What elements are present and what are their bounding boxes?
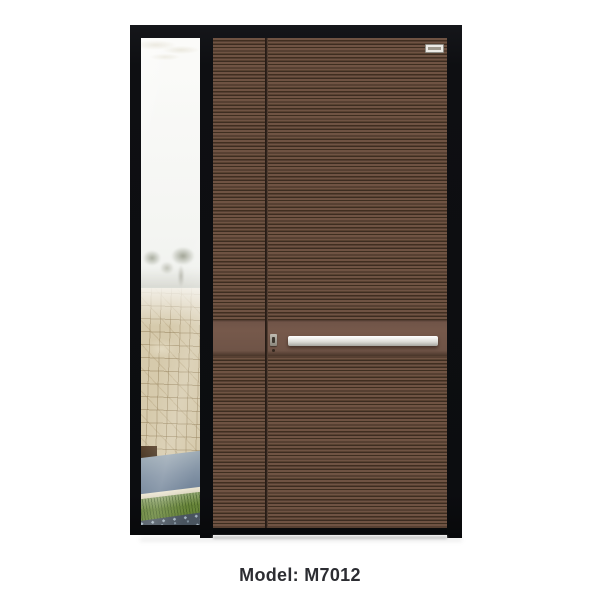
brand-plate — [425, 44, 444, 53]
door-leaf — [213, 38, 447, 528]
sidelight-glass — [141, 38, 200, 525]
floor-shadow-soft — [140, 537, 462, 542]
vertical-groove — [265, 38, 268, 528]
door-unit-frame — [130, 25, 462, 535]
lock-cylinder — [270, 334, 277, 346]
lock-screw-dot — [272, 349, 275, 352]
brand-plate-text — [428, 47, 441, 50]
model-label: Model: M7012 — [0, 565, 600, 586]
door-handle-bar — [288, 336, 438, 346]
product-image-canvas: Model: M7012 — [0, 0, 600, 600]
glass-reflection — [141, 38, 200, 525]
keyhole-icon — [272, 337, 275, 343]
